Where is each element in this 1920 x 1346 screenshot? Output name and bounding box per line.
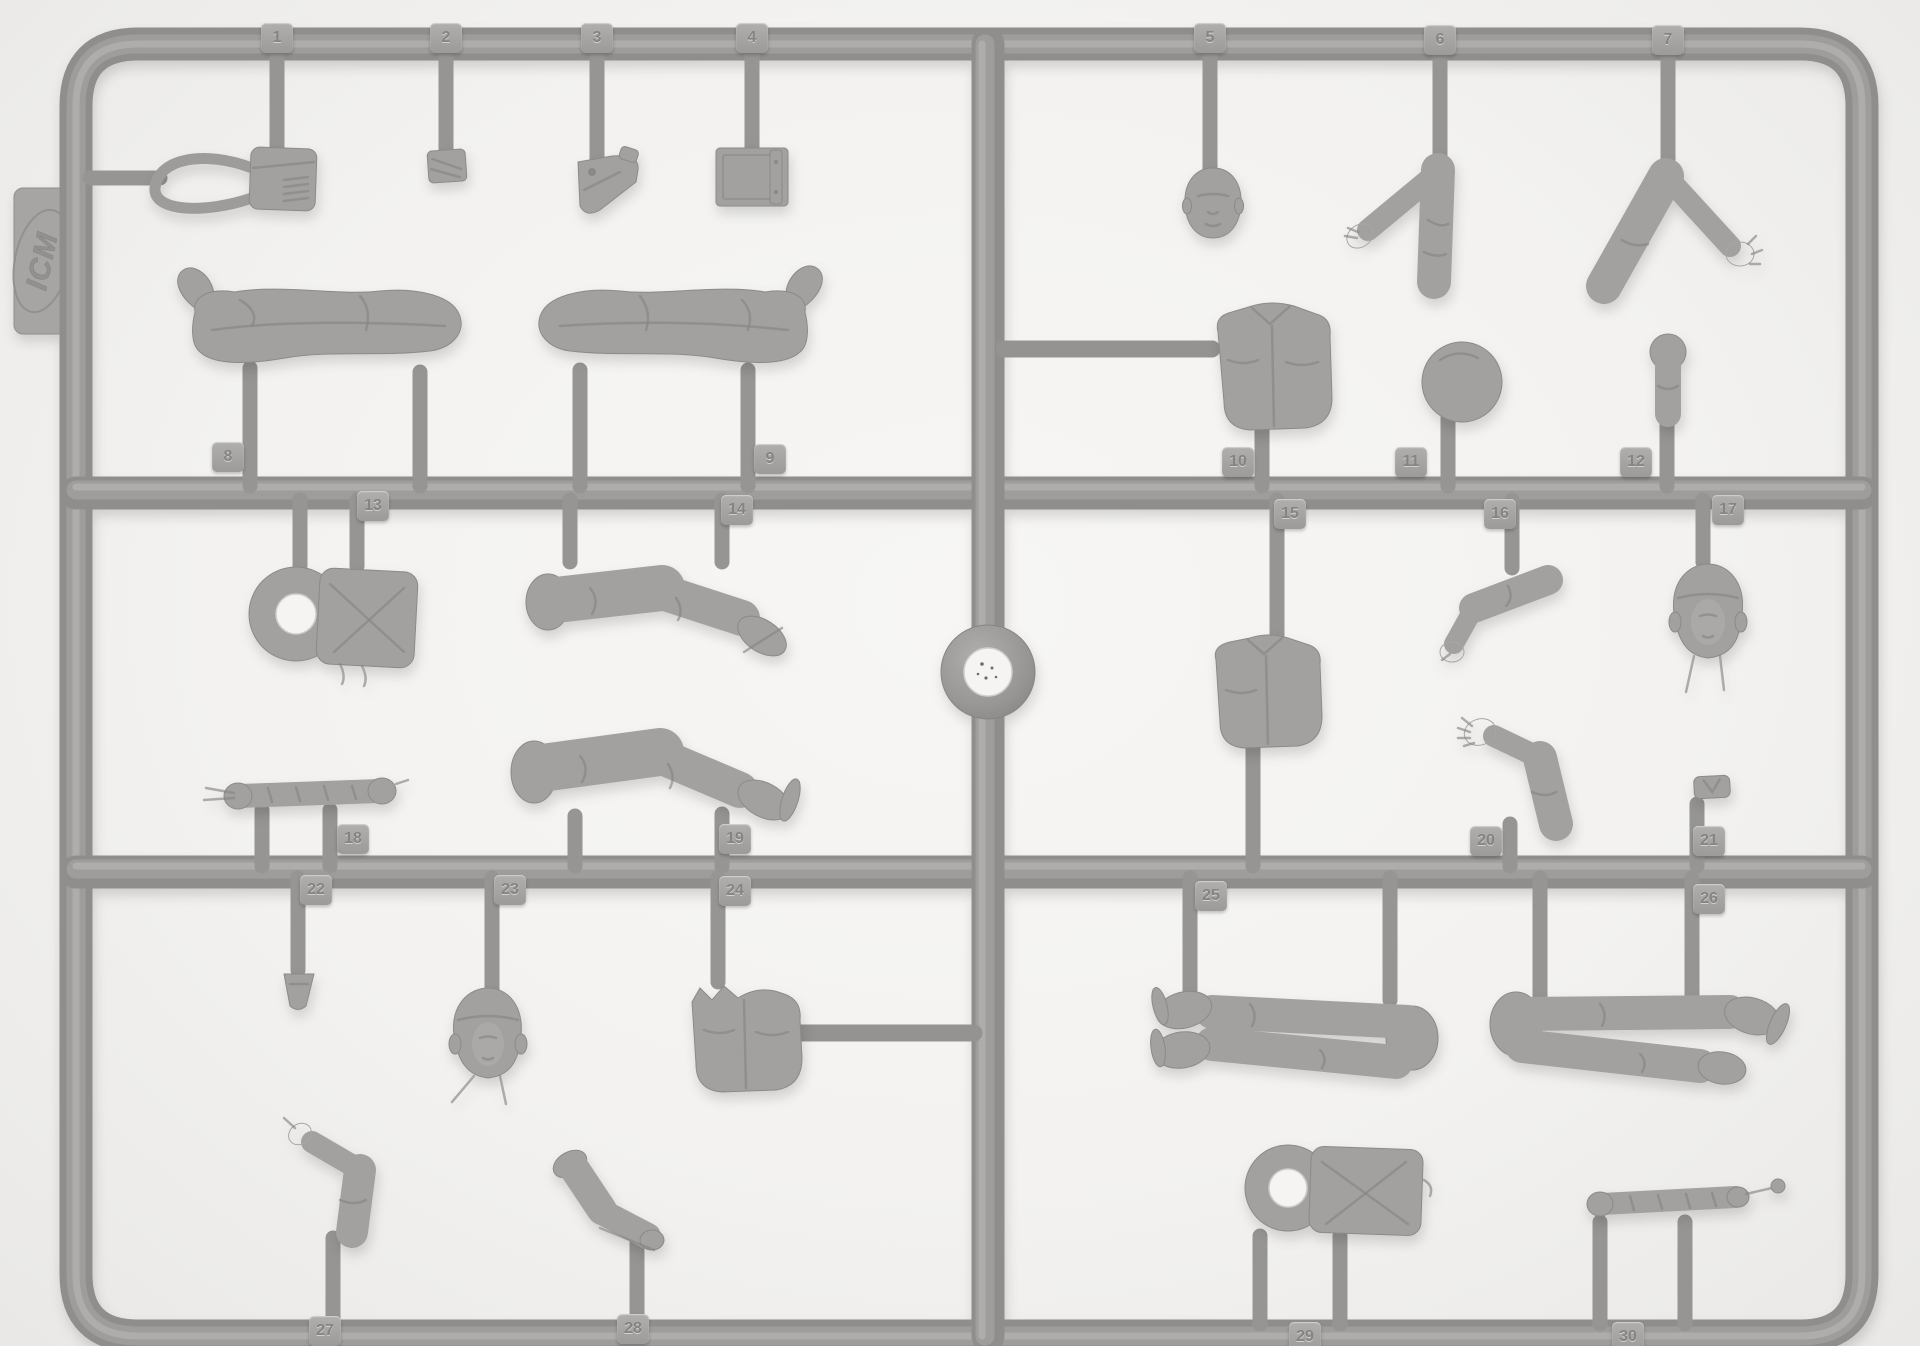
part-number-tab-legs-pair: 26 <box>1693 884 1725 914</box>
part-number-tab-torso-jacket: 10 <box>1222 447 1254 477</box>
part-number-tab-head-flight-helmet: 17 <box>1712 495 1744 525</box>
part-number-tab-bent-arm-open-hand: 7 <box>1652 25 1684 55</box>
part-number-tab-life-vest-with-ring: 29 <box>1289 1322 1321 1346</box>
part-number-tab-small-buckle: 21 <box>1693 826 1725 856</box>
part-number-tab-bent-arm: 6 <box>1424 25 1456 55</box>
part-number-tab-legs-pair: 25 <box>1195 881 1227 911</box>
part-number-tab-head-flight-helmet: 23 <box>494 875 526 905</box>
part-number-tab-strap-roll: 30 <box>1612 1322 1644 1346</box>
part-number-tab-arm-pointing: 27 <box>309 1316 341 1346</box>
part-number-tab-boot-lower-leg: 28 <box>617 1314 649 1344</box>
part-number-tab-arm-open-hand: 20 <box>1470 826 1502 856</box>
part-number-tab-pouch-with-strap: 1 <box>261 23 293 53</box>
part-number-tab-small-pouch: 2 <box>430 23 462 53</box>
part-number-tab-legs-seated: 9 <box>754 444 786 474</box>
part-number-tab-strap-roll: 18 <box>337 824 369 854</box>
part-number-tab-round-ball-part: 11 <box>1395 447 1427 477</box>
part-number-tab-bent-arm: 16 <box>1484 499 1516 529</box>
part-number-tab-small-capped-part: 12 <box>1620 447 1652 477</box>
part-number-tab-bare-head: 5 <box>1194 23 1226 53</box>
part-number-tab-torso-jacket: 15 <box>1274 499 1306 529</box>
part-number-tab-pistol-holster: 3 <box>581 23 613 53</box>
part-number-tab-map-case: 4 <box>736 23 768 53</box>
part-number-tab-small-buckle: 22 <box>300 875 332 905</box>
part-tabs-layer: 1234567891011121314151617181920212223242… <box>0 0 1920 1346</box>
part-number-tab-bent-leg: 14 <box>721 495 753 525</box>
part-number-tab-life-vest-with-ring: 13 <box>357 491 389 521</box>
part-number-tab-bent-leg-boot: 19 <box>719 824 751 854</box>
part-number-tab-legs-seated: 8 <box>212 442 244 472</box>
part-number-tab-torso-jacket: 24 <box>719 876 751 906</box>
sprue-photo: ICM <box>0 0 1920 1346</box>
